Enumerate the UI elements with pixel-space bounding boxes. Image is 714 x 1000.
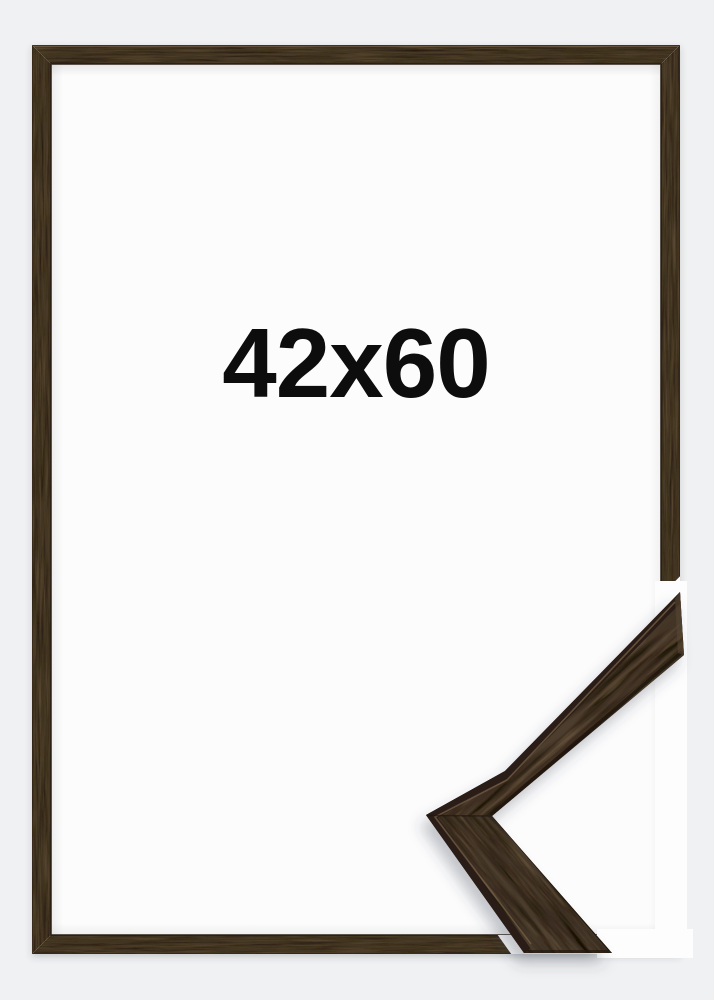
frame-border-left <box>32 45 51 954</box>
frame-product-photo <box>0 0 714 1000</box>
picture-frame <box>32 45 680 954</box>
frame-border-top <box>32 45 680 64</box>
size-label: 42x60 <box>32 296 680 430</box>
product-image: 42x60 <box>0 0 714 1000</box>
opening-shadow-left <box>51 64 63 935</box>
frame-opening-mat <box>51 64 661 935</box>
opening-shadow-top <box>51 64 661 76</box>
corner-sample-miter-seam <box>427 816 491 817</box>
